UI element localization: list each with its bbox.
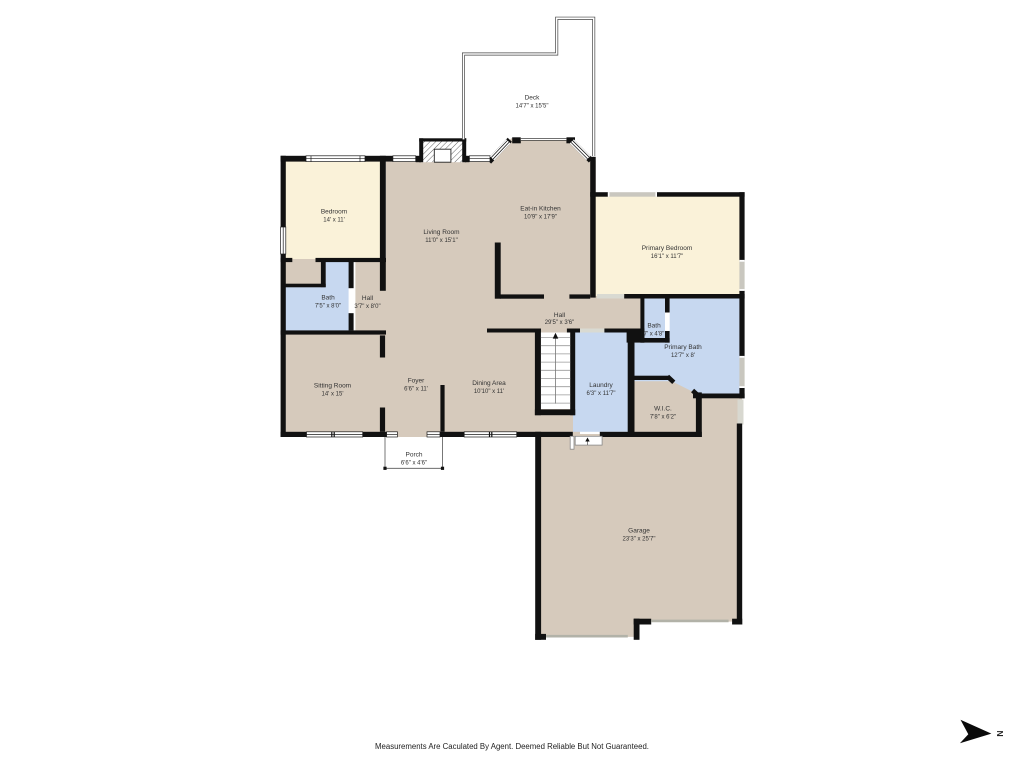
svg-text:23'3" x 25'7": 23'3" x 25'7" bbox=[623, 537, 656, 543]
svg-text:Laundry: Laundry bbox=[589, 382, 613, 389]
svg-text:Porch: Porch bbox=[406, 452, 423, 459]
svg-text:6'6" x 11': 6'6" x 11' bbox=[404, 387, 428, 393]
svg-text:Foyer: Foyer bbox=[408, 378, 425, 385]
svg-text:N: N bbox=[995, 731, 1005, 737]
svg-text:Dining Area: Dining Area bbox=[472, 380, 506, 387]
svg-text:14' x 11': 14' x 11' bbox=[323, 218, 345, 224]
svg-text:Hall: Hall bbox=[554, 312, 566, 319]
svg-text:Eat-in Kitchen: Eat-in Kitchen bbox=[520, 206, 561, 213]
svg-text:Measurements Are Caculated By: Measurements Are Caculated By Agent. Dee… bbox=[375, 742, 649, 751]
svg-text:29'5" x 3'6": 29'5" x 3'6" bbox=[545, 320, 575, 326]
svg-text:16'1" x 11'7": 16'1" x 11'7" bbox=[651, 254, 683, 260]
svg-text:7' x 4'8": 7' x 4'8" bbox=[644, 332, 665, 338]
svg-text:Sitting Room: Sitting Room bbox=[314, 383, 351, 390]
svg-text:7'5" x 8'0": 7'5" x 8'0" bbox=[315, 304, 341, 310]
svg-text:Garage: Garage bbox=[628, 528, 650, 535]
svg-text:14' x 15': 14' x 15' bbox=[322, 392, 344, 398]
svg-text:Primary Bath: Primary Bath bbox=[664, 344, 702, 351]
svg-text:7'8" x 6'2": 7'8" x 6'2" bbox=[650, 415, 676, 421]
svg-text:14'7" x 15'5": 14'7" x 15'5" bbox=[516, 104, 549, 110]
svg-text:Living Room: Living Room bbox=[423, 229, 459, 236]
svg-text:10'10" x 11': 10'10" x 11' bbox=[474, 389, 504, 395]
svg-text:Bath: Bath bbox=[321, 295, 335, 302]
svg-text:Bath: Bath bbox=[647, 323, 661, 330]
svg-text:Primary Bedroom: Primary Bedroom bbox=[642, 245, 693, 252]
svg-text:W.I.C.: W.I.C. bbox=[654, 406, 672, 413]
svg-text:6'6" x 4'6": 6'6" x 4'6" bbox=[401, 461, 427, 467]
svg-text:Deck: Deck bbox=[525, 95, 541, 102]
svg-text:6'3" x 11'7": 6'3" x 11'7" bbox=[586, 391, 615, 397]
svg-text:Bedroom: Bedroom bbox=[321, 209, 347, 216]
svg-text:10'9" x 17'9": 10'9" x 17'9" bbox=[524, 215, 557, 221]
svg-text:12'7" x 8': 12'7" x 8' bbox=[671, 353, 695, 359]
svg-text:3'7" x 8'0": 3'7" x 8'0" bbox=[354, 304, 380, 310]
svg-text:Hall: Hall bbox=[362, 295, 374, 302]
svg-text:11'0" x 15'1": 11'0" x 15'1" bbox=[425, 238, 457, 244]
